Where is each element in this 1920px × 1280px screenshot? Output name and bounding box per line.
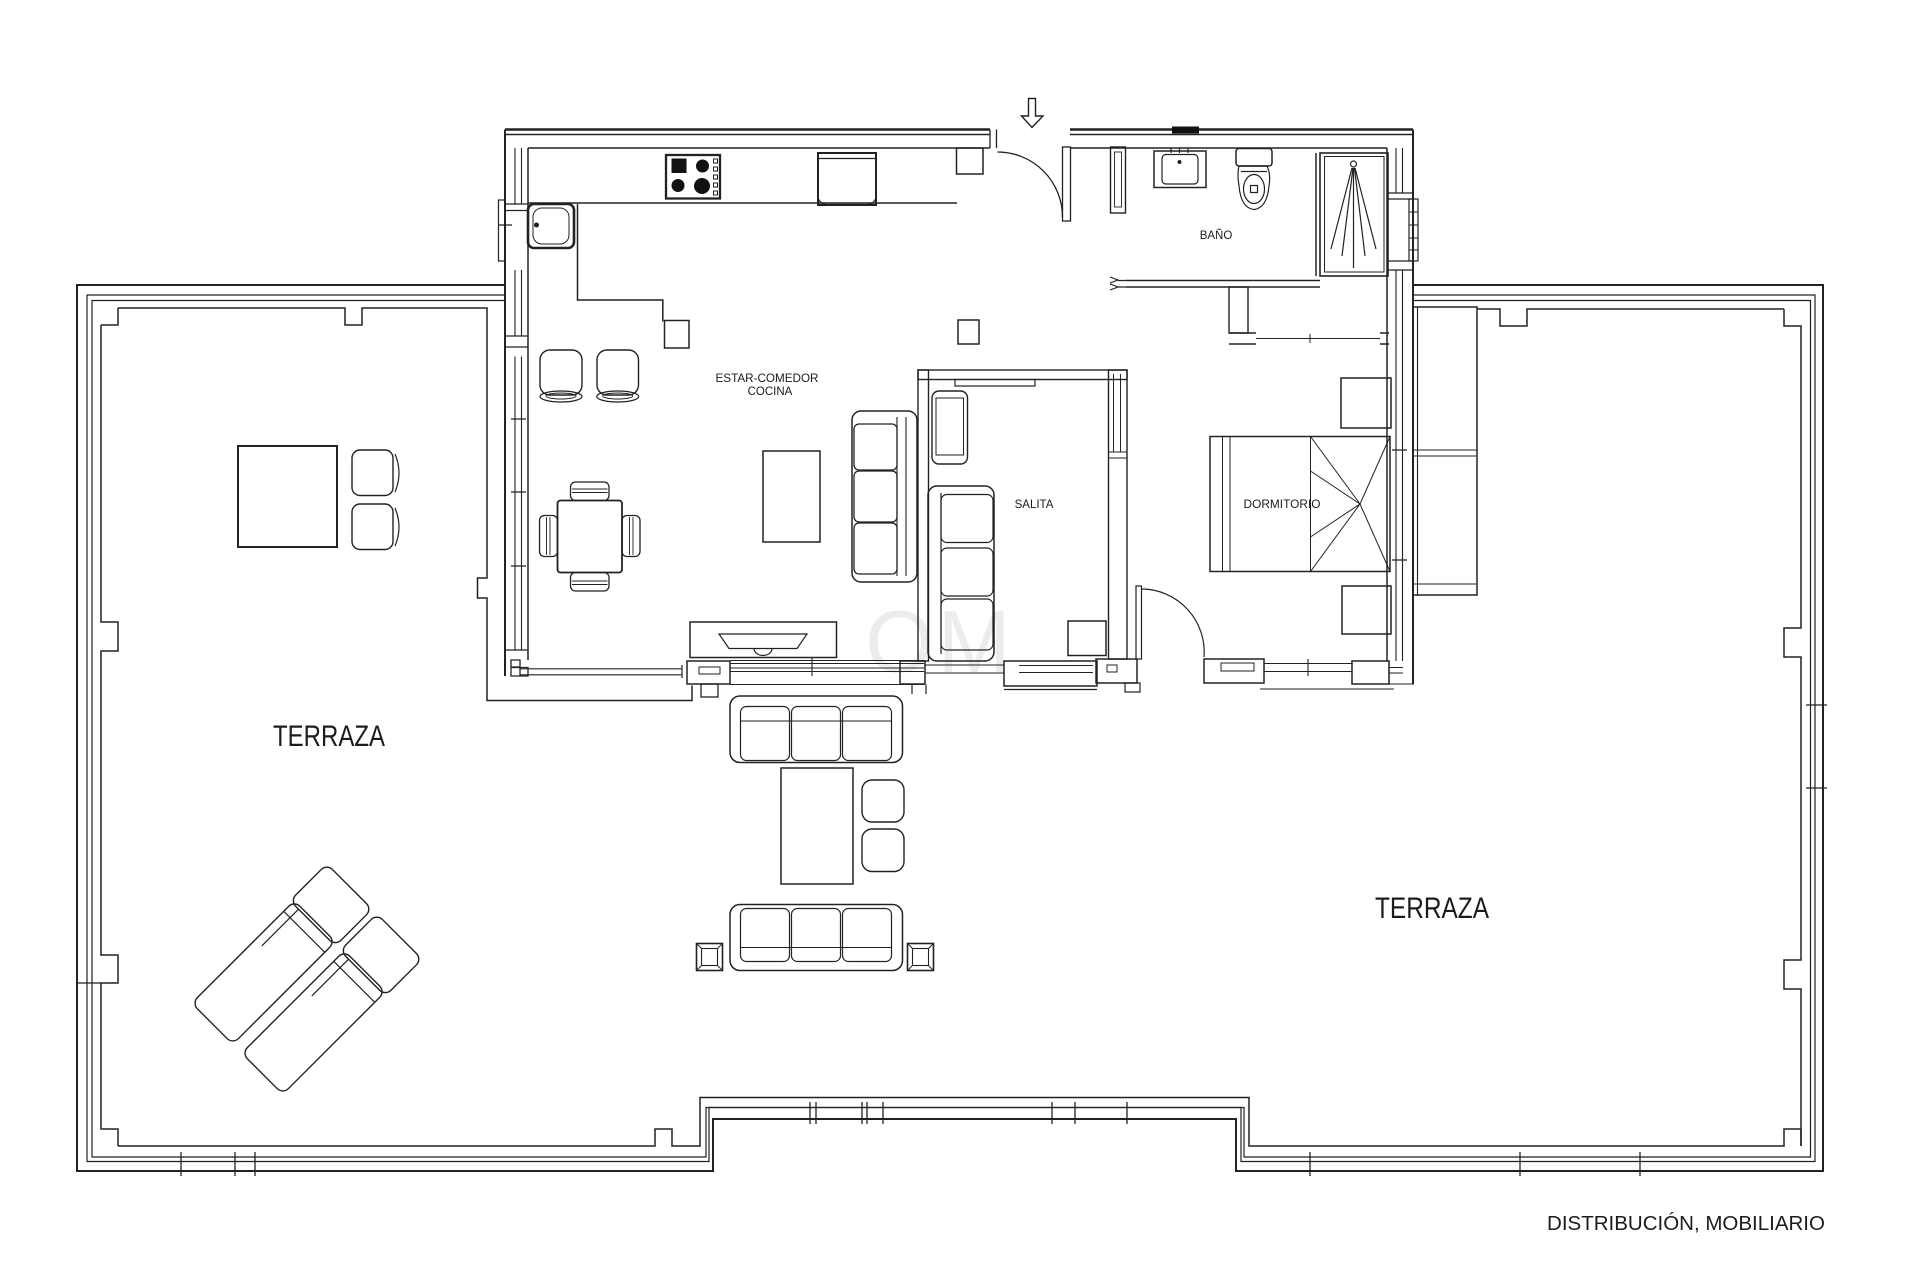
svg-text:SALITA: SALITA [1015, 499, 1054, 511]
svg-text:DISTRIBUCIÓN, MOBILIARIO: DISTRIBUCIÓN, MOBILIARIO [1547, 1212, 1825, 1235]
svg-text:COCINA: COCINA [748, 386, 793, 398]
svg-text:TERRAZA: TERRAZA [1375, 892, 1489, 925]
svg-text:DORMITORIO: DORMITORIO [1244, 499, 1321, 511]
svg-text:BAÑO: BAÑO [1200, 229, 1233, 242]
svg-text:ESTAR-COMEDOR: ESTAR-COMEDOR [716, 373, 819, 385]
svg-text:TERRAZA: TERRAZA [273, 720, 385, 753]
